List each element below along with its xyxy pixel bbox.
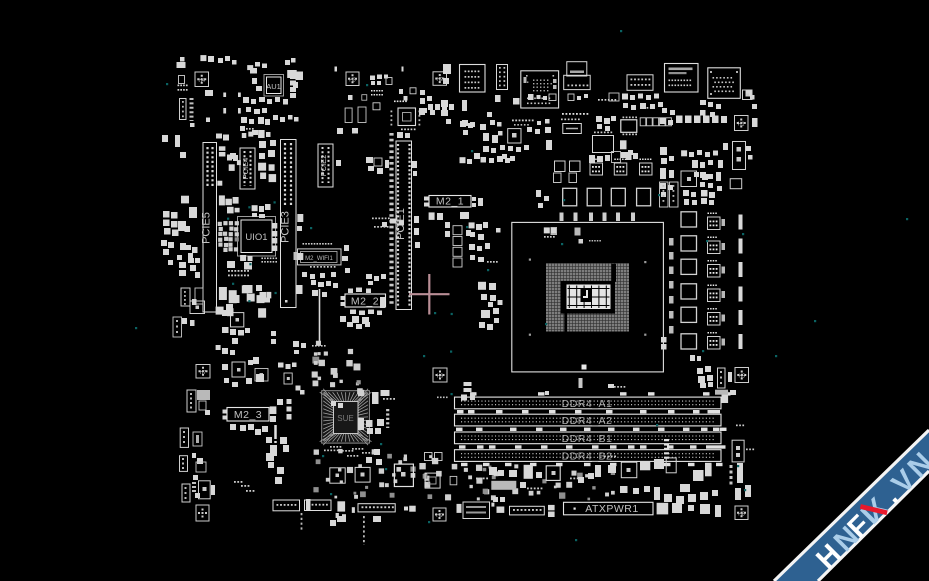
svg-text:PCIE3: PCIE3 (279, 211, 291, 243)
svg-text:H3: H3 (349, 77, 356, 83)
svg-text:ATXPWR1: ATXPWR1 (585, 503, 638, 515)
svg-text:H1: H1 (738, 122, 745, 128)
svg-text:AU1: AU1 (266, 82, 281, 91)
svg-text:PCIE5: PCIE5 (201, 212, 213, 244)
svg-text:M2_3: M2_3 (234, 409, 262, 421)
svg-text:DDR4_A1: DDR4_A1 (562, 398, 613, 410)
svg-text:SUE: SUE (337, 414, 353, 423)
svg-text:M2_WIFI1: M2_WIFI1 (305, 256, 333, 262)
svg-text:H5: H5 (739, 374, 746, 380)
svg-text:H7: H7 (200, 370, 207, 376)
svg-text:H4: H4 (199, 78, 206, 84)
svg-text:UIO1: UIO1 (245, 232, 267, 243)
svg-text:PCIE4: PCIE4 (241, 158, 250, 180)
svg-text:H6: H6 (437, 374, 444, 380)
svg-text:M2_1: M2_1 (436, 196, 464, 208)
svg-text:DDR4_A2: DDR4_A2 (562, 415, 613, 427)
svg-text:PCIE2: PCIE2 (319, 155, 328, 177)
svg-text:H8: H8 (738, 511, 745, 517)
svg-text:H2: H2 (437, 77, 444, 83)
svg-text:H9: H9 (436, 513, 443, 519)
svg-text:M2_2: M2_2 (351, 295, 379, 307)
svg-text:DDR4_B1: DDR4_B1 (562, 433, 613, 445)
